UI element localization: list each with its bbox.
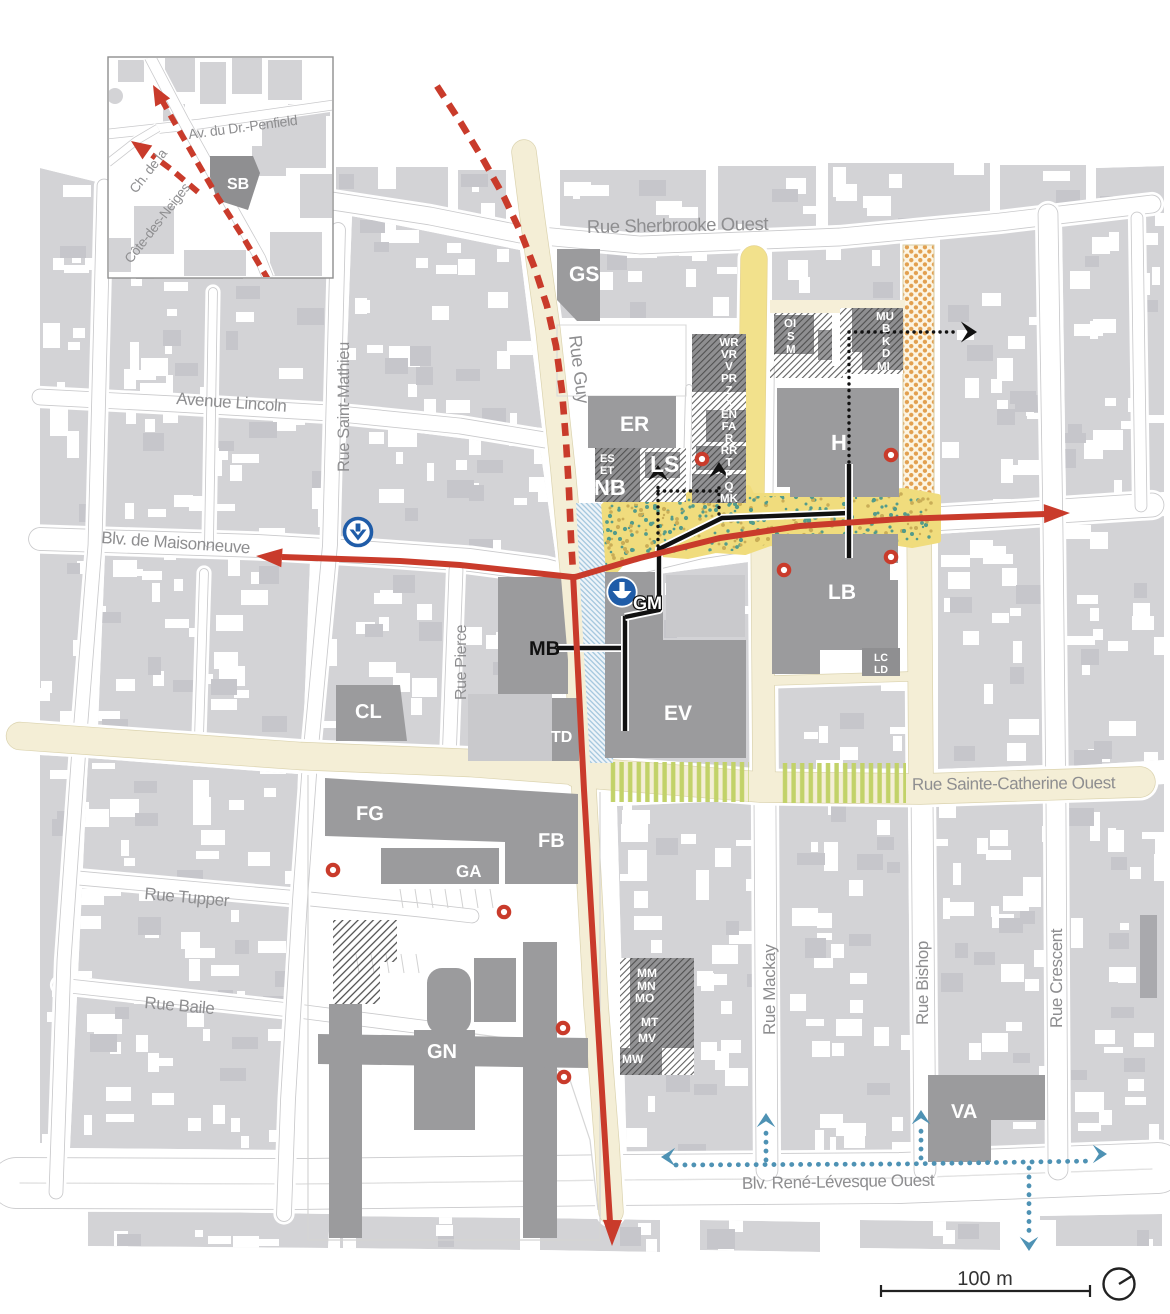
svg-text:GN: GN (427, 1041, 457, 1063)
svg-text:LD: LD (874, 664, 888, 676)
svg-text:Q: Q (725, 481, 734, 493)
svg-text:FG: FG (356, 803, 384, 825)
svg-text:RR: RR (721, 445, 738, 457)
svg-text:PR: PR (721, 373, 738, 385)
svg-text:Rue Saint-Mathieu: Rue Saint-Mathieu (335, 342, 353, 472)
svg-text:MK: MK (720, 493, 739, 505)
svg-text:GM: GM (633, 593, 662, 613)
svg-text:R: R (725, 433, 734, 445)
svg-text:Z: Z (725, 385, 732, 397)
svg-text:K: K (882, 336, 891, 348)
svg-text:CL: CL (355, 701, 382, 723)
svg-text:Blv. René-Lévesque Ouest: Blv. René-Lévesque Ouest (742, 1171, 935, 1193)
svg-text:MT: MT (641, 1015, 659, 1029)
svg-text:TD: TD (551, 729, 572, 746)
svg-text:MU: MU (876, 311, 894, 323)
svg-text:Rue Pierce: Rue Pierce (453, 624, 470, 700)
svg-text:Rue Mackay: Rue Mackay (760, 944, 779, 1035)
svg-text:MW: MW (622, 1052, 644, 1066)
svg-text:T: T (725, 457, 732, 469)
svg-text:VA: VA (951, 1101, 977, 1123)
svg-text:MM: MM (637, 966, 657, 980)
svg-text:Rue Sherbrooke Ouest: Rue Sherbrooke Ouest (587, 213, 769, 237)
svg-text:MV: MV (638, 1031, 656, 1045)
svg-text:M: M (786, 344, 796, 356)
svg-text:GS: GS (569, 263, 599, 286)
svg-text:OI: OI (784, 318, 796, 330)
svg-text:MO: MO (635, 991, 654, 1005)
svg-text:FB: FB (538, 830, 565, 852)
svg-text:LS: LS (650, 451, 679, 477)
svg-text:ER: ER (620, 413, 649, 436)
svg-text:EV: EV (664, 702, 692, 725)
svg-text:S: S (787, 331, 795, 343)
svg-text:Rue Crescent: Rue Crescent (1047, 928, 1066, 1028)
svg-text:NB: NB (594, 475, 626, 500)
svg-text:LC: LC (874, 652, 888, 664)
svg-text:Rue Bishop: Rue Bishop (913, 941, 932, 1025)
svg-text:B: B (882, 323, 890, 335)
svg-text:100 m: 100 m (957, 1268, 1013, 1290)
svg-text:D: D (882, 348, 890, 360)
svg-text:VR: VR (721, 349, 738, 361)
svg-text:V: V (725, 361, 733, 373)
svg-text:X: X (725, 397, 733, 409)
svg-text:LB: LB (828, 581, 856, 604)
svg-text:FA: FA (722, 421, 737, 433)
svg-text:ES: ES (600, 453, 615, 465)
svg-text:MB: MB (529, 638, 560, 660)
svg-text:H: H (831, 430, 847, 455)
svg-text:GA: GA (456, 862, 482, 881)
svg-text:P: P (725, 469, 733, 481)
svg-text:ET: ET (600, 465, 614, 477)
svg-text:EN: EN (721, 409, 737, 421)
svg-text:Rue Sainte-Catherine Ouest: Rue Sainte-Catherine Ouest (912, 773, 1116, 794)
svg-text:MI: MI (877, 361, 890, 373)
svg-text:WR: WR (719, 337, 739, 349)
svg-text:SB: SB (227, 176, 249, 193)
